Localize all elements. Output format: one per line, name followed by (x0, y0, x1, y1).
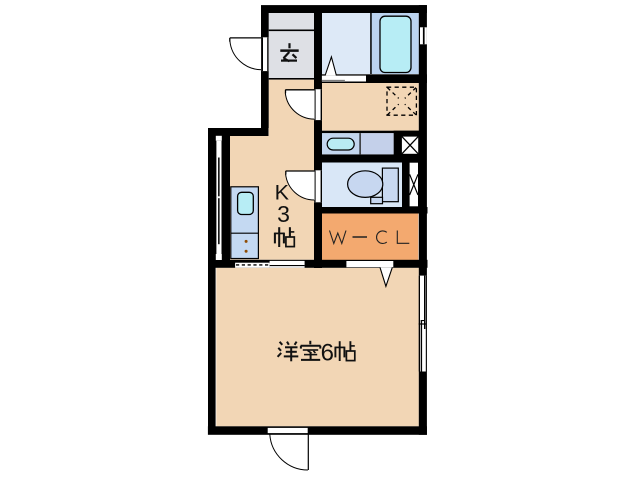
svg-text:6: 6 (321, 339, 334, 366)
svg-text:3: 3 (277, 201, 290, 227)
